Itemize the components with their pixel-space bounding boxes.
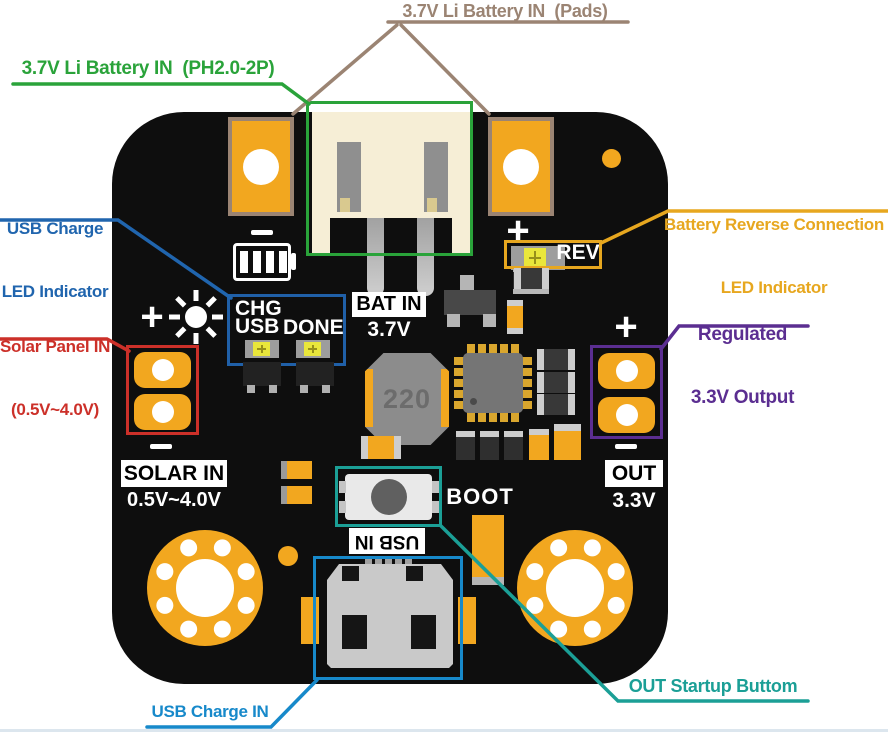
component-leg [447, 314, 460, 327]
component-leg [269, 385, 277, 393]
battery-connector-outline-box [306, 101, 473, 256]
capacitor [456, 431, 475, 460]
solar-in-outline-box [126, 345, 199, 435]
solar-panel-callout-label: Solar Panel IN (0.5V~4.0V) [0, 294, 110, 462]
mount-hole-center [546, 559, 604, 617]
out-label: OUT [605, 460, 663, 487]
bat-in-label: BAT IN [352, 292, 426, 317]
rev-led-outline-box [504, 240, 602, 269]
usb-in-label: USB IN [349, 528, 425, 554]
mounting-hole-left [147, 530, 263, 646]
out-voltage-label: 3.3V [605, 489, 663, 513]
solar-in-label: SOLAR IN [121, 460, 227, 487]
label-line: Solar Panel IN [0, 336, 110, 357]
mount-ring-hole [211, 536, 233, 558]
capacitor [281, 486, 312, 504]
ic-pin [500, 412, 508, 422]
capacitor [537, 372, 575, 393]
via-dot [602, 149, 621, 168]
boot-outline-box [335, 466, 442, 527]
out-startup-callout-label: OUT Startup Buttom [618, 676, 808, 697]
bat-voltage-label: 3.7V [352, 318, 426, 342]
capacitor [537, 394, 575, 415]
label-line: (0.5V~4.0V) [0, 399, 110, 420]
pad-hole [243, 149, 279, 185]
mount-ring-hole [235, 594, 257, 616]
transistor [296, 362, 334, 386]
battery-icon-bar [240, 251, 248, 273]
inductor-terminal [441, 369, 449, 427]
inductor-terminal [365, 369, 373, 427]
mount-ring-hole [153, 560, 175, 582]
mount-ring-hole [177, 536, 199, 558]
capacitor [514, 268, 549, 289]
via-dot [278, 546, 298, 566]
plus-mark: + [606, 304, 646, 350]
out-outline-box [590, 345, 663, 439]
solar-power-manager-diagram: + REV CHG USB DONE BAT IN 3.7V + + 220 [0, 0, 888, 732]
mount-ring-hole [235, 560, 257, 582]
battery-connector-callout-line [13, 84, 309, 104]
transistor [243, 362, 281, 386]
ic-pin [522, 390, 532, 398]
minus-mark [251, 230, 273, 235]
minus-mark [150, 444, 172, 449]
mount-ring-hole [523, 594, 545, 616]
battery-pad-right [488, 117, 554, 216]
capacitor [507, 300, 523, 334]
mount-ring-hole [605, 594, 627, 616]
boot-label: BOOT [445, 484, 515, 510]
ic-pin [522, 401, 532, 409]
capacitor [480, 431, 499, 460]
capacitor [537, 349, 575, 370]
battery-pad-left [228, 117, 294, 216]
label-line: USB Charge [0, 218, 110, 239]
charge-led-outline-box [227, 294, 346, 366]
mount-ring-hole [581, 618, 603, 640]
mount-ring-hole [581, 536, 603, 558]
pad-hole [503, 149, 539, 185]
ic-pin [522, 379, 532, 387]
mount-ring-hole [547, 536, 569, 558]
battery-icon-bar [279, 251, 287, 273]
inductor: 220 [365, 353, 449, 445]
component-leg [322, 385, 330, 393]
component-leg [460, 275, 474, 290]
component-leg [483, 314, 496, 327]
mount-hole-center [176, 559, 234, 617]
battery-connector-callout-label: 3.7V Li Battery IN (PH2.0-2P) [8, 58, 288, 79]
ic-pin [478, 412, 486, 422]
mount-ring-hole [153, 594, 175, 616]
usb-outline-box [313, 556, 463, 680]
mounting-hole-right [517, 530, 633, 646]
component-leg [247, 385, 255, 393]
ic-pin [489, 412, 497, 422]
label-line: Regulated [675, 324, 810, 345]
capacitor [361, 436, 401, 459]
usb-charge-in-callout-label: USB Charge IN [147, 701, 273, 722]
regulated-output-callout-label: Regulated 3.3V Output [675, 282, 810, 450]
plus-mark: + [132, 294, 172, 340]
capacitor [504, 431, 523, 460]
capacitor [529, 429, 549, 460]
ic-pin [522, 368, 532, 376]
capacitor [554, 424, 581, 460]
battery-icon-terminal [291, 253, 296, 270]
capacitor [281, 461, 312, 479]
battery-pads-callout-label: 3.7V Li Battery IN (Pads) [370, 1, 640, 22]
mount-ring-hole [211, 618, 233, 640]
solar-range-label: 0.5V~4.0V [117, 489, 231, 512]
transistor-sot23 [444, 290, 496, 315]
label-line: 3.3V Output [675, 387, 810, 408]
battery-icon-bar [253, 251, 261, 273]
capacitor [472, 515, 504, 585]
mount-ring-hole [177, 618, 199, 640]
mount-ring-hole [547, 618, 569, 640]
component-leg [300, 385, 308, 393]
ic-pin [522, 357, 532, 365]
mount-ring-hole [523, 560, 545, 582]
inductor-value: 220 [383, 384, 431, 415]
mount-ring-hole [605, 560, 627, 582]
ic-pin [511, 412, 519, 422]
ic-pin [467, 412, 475, 422]
battery-icon-bar [266, 251, 274, 273]
minus-mark [615, 444, 637, 449]
ic-pin1-dot [470, 398, 477, 405]
label-line: Battery Reverse Connection [660, 214, 888, 235]
